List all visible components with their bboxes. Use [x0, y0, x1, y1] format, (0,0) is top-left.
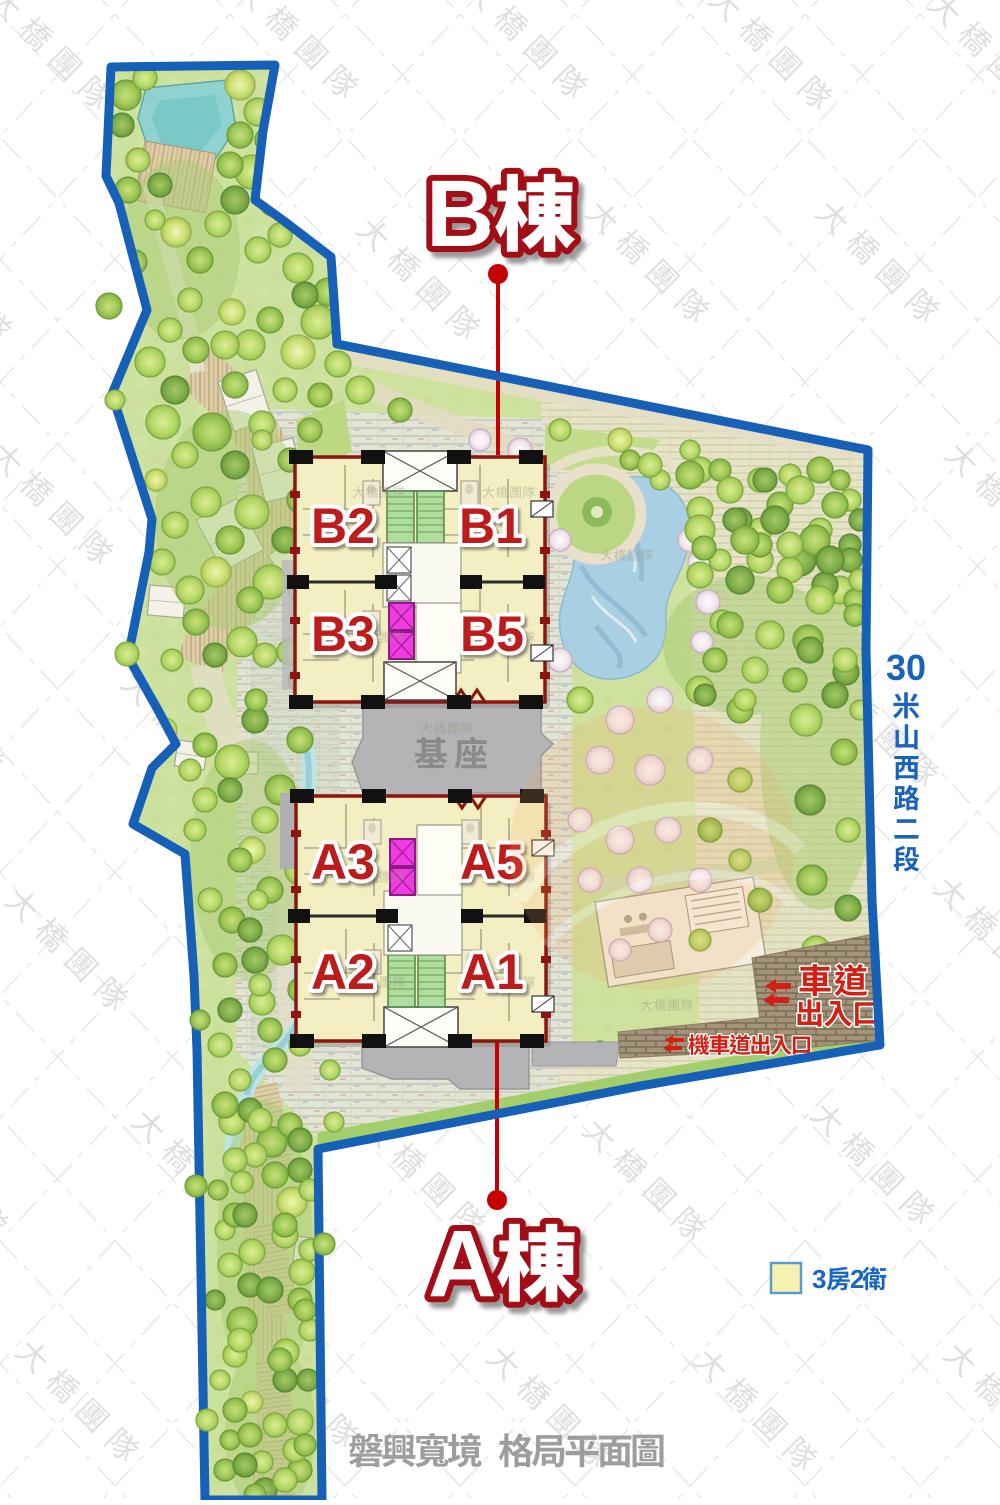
svg-text:A: A: [428, 1211, 497, 1317]
svg-text:B3: B3: [311, 606, 375, 662]
svg-text:B1: B1: [459, 498, 523, 554]
svg-text:2: 2: [850, 1264, 864, 1294]
svg-text:B5: B5: [460, 606, 524, 662]
svg-text:B2: B2: [311, 498, 375, 554]
svg-text:3: 3: [812, 1264, 826, 1294]
svg-text:30: 30: [886, 647, 926, 688]
svg-text:A2: A2: [311, 944, 375, 1000]
svg-text:A1: A1: [460, 944, 524, 1000]
svg-text:A3: A3: [311, 834, 375, 890]
svg-text:B: B: [426, 161, 495, 267]
